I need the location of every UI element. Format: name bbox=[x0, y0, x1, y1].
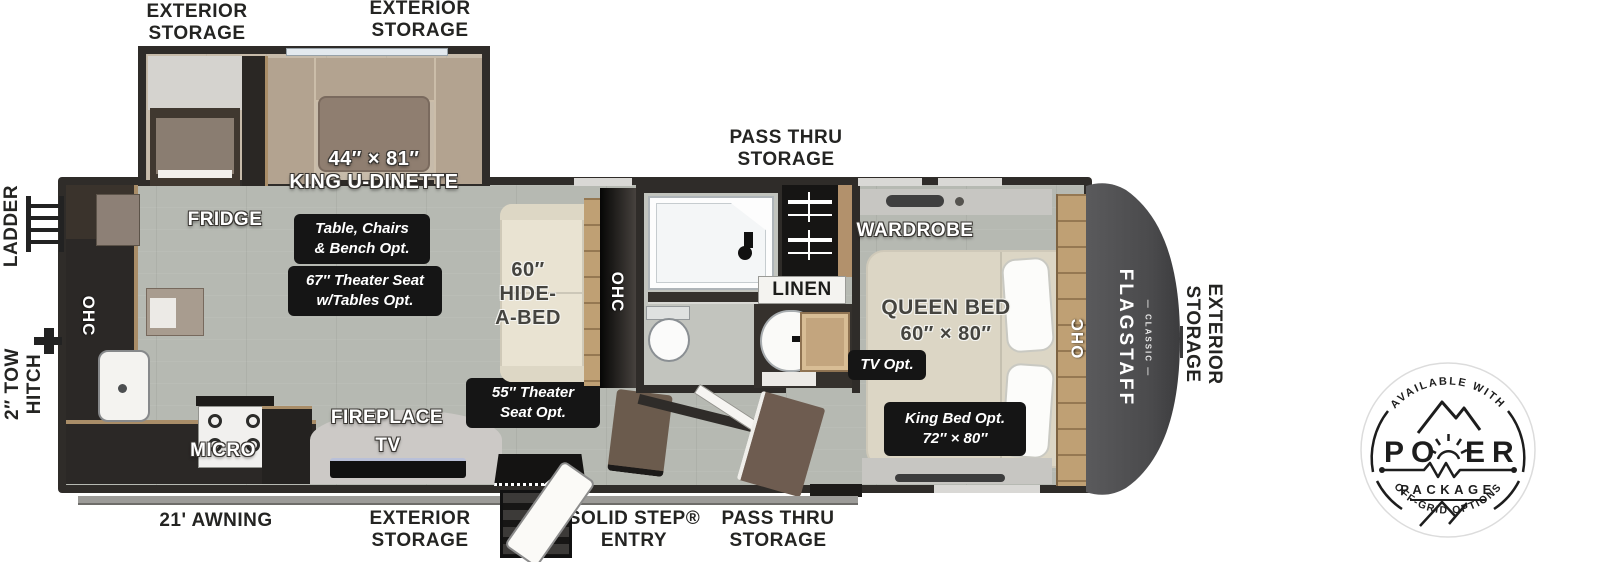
dinette-dims-label: 44″ × 81″ bbox=[294, 148, 454, 170]
callout-exterior-storage-bottom: EXTERIOR STORAGE bbox=[340, 508, 500, 552]
sofa-armrest-bottom bbox=[500, 366, 584, 382]
shower-head-face bbox=[738, 246, 752, 260]
dinette-name-label: KING U-DINETTE bbox=[254, 171, 494, 193]
badge-dot-right bbox=[1511, 467, 1517, 473]
bath-shelf bbox=[648, 292, 774, 304]
wardrobe-label: WARDROBE bbox=[842, 220, 988, 242]
living-ohc-label: OHC bbox=[607, 262, 627, 322]
king-bed-option-badge: King Bed Opt. 72″ × 80″ bbox=[884, 402, 1026, 456]
closet-rod-group-1 bbox=[788, 200, 832, 216]
bedroom-ohc-label: OHC bbox=[1068, 308, 1088, 368]
badge-power-right: ER bbox=[1465, 436, 1521, 469]
callout-solid-step-entry: SOLID STEP® ENTRY bbox=[554, 508, 714, 552]
window-top-bedroom-1 bbox=[858, 178, 922, 186]
queen-dims-label: 60″ × 80″ bbox=[868, 322, 1024, 346]
dinette-option-badge: Table, Chairs & Bench Opt. bbox=[294, 214, 430, 264]
tv-option-badge: TV Opt. bbox=[848, 350, 926, 380]
slide-divider-cabinet bbox=[242, 56, 268, 186]
exterior-storage-compartment bbox=[148, 56, 242, 110]
callout-tow-hitch: 2″ TOW HITCH bbox=[2, 332, 50, 436]
linen-label: LINEN bbox=[772, 279, 832, 301]
range-vent bbox=[196, 396, 274, 406]
tv-unit bbox=[330, 458, 466, 478]
kitchen-ohc-label: OHC bbox=[78, 286, 98, 346]
hide-a-bed-label: 60″ HIDE- A-BED bbox=[468, 258, 588, 330]
closet-rod-group-2 bbox=[788, 238, 832, 254]
brand-series-label: — CLASSIC — bbox=[1140, 284, 1153, 394]
badge-package-label: PACKAGE bbox=[1400, 482, 1496, 497]
queen-bed-label: QUEEN BED bbox=[858, 296, 1034, 320]
range-burner-2 bbox=[246, 414, 260, 428]
sofa-armrest-top bbox=[500, 204, 584, 220]
dresser-knob bbox=[955, 197, 964, 206]
tv-label: TV bbox=[362, 435, 414, 457]
fridge-label: FRIDGE bbox=[178, 209, 272, 231]
ladder-icon bbox=[26, 196, 64, 252]
window-top-bedroom-2 bbox=[938, 178, 1002, 186]
bench-item bbox=[895, 474, 1005, 482]
callout-exterior-storage-top-left: EXTERIOR STORAGE bbox=[117, 1, 277, 45]
slideout-window bbox=[286, 48, 448, 56]
vanity-step bbox=[762, 372, 816, 386]
toilet-bowl bbox=[648, 318, 690, 362]
micro-label: MICRO bbox=[178, 440, 268, 462]
callout-exterior-storage-top-mid: EXTERIOR STORAGE bbox=[340, 0, 500, 42]
dresser-tray bbox=[886, 195, 944, 207]
fridge-front bbox=[156, 118, 234, 174]
entertainment-cabinet bbox=[262, 406, 312, 484]
range-burner-1 bbox=[208, 414, 222, 428]
kitchen-appliance-front bbox=[150, 298, 176, 328]
linen-closet: LINEN bbox=[758, 276, 846, 304]
badge-dot-left bbox=[1379, 467, 1385, 473]
closet-rod-post-1 bbox=[808, 192, 810, 222]
callout-pass-thru-top: PASS THRU STORAGE bbox=[706, 127, 866, 171]
theater55-option-badge: 55″ Theater Seat Opt. bbox=[466, 378, 600, 428]
theater67-option-badge: 67″ Theater Seat w/Tables Opt. bbox=[288, 266, 442, 316]
pantry-box bbox=[96, 194, 140, 246]
window-bottom-bedroom bbox=[934, 485, 1040, 493]
callout-awning: 21' AWNING bbox=[136, 510, 296, 532]
closet-rod-post-2 bbox=[808, 230, 810, 260]
sink-faucet bbox=[118, 384, 127, 393]
window-top-sofa bbox=[574, 178, 632, 186]
power-package-badge: AVAILABLE WITH OFF-GRID OPTIONS PO ER PA… bbox=[1358, 360, 1538, 540]
awning-rail bbox=[78, 496, 858, 505]
callout-exterior-storage-front: EXTERIOR STORAGE bbox=[1175, 276, 1225, 392]
fireplace-label: FIREPLACE bbox=[312, 407, 462, 429]
fridge-door-seal bbox=[158, 170, 232, 178]
callout-pass-thru-bottom: PASS THRU STORAGE bbox=[698, 508, 858, 552]
brand-name-label: FLAGSTAFF bbox=[1112, 258, 1136, 418]
floorplan-canvas: 44″ × 81″ KING U-DINETTE OHC MICRO FRIDG… bbox=[0, 0, 1600, 562]
callout-ladder: LADDER bbox=[1, 181, 25, 271]
medicine-cabinet bbox=[800, 312, 850, 372]
